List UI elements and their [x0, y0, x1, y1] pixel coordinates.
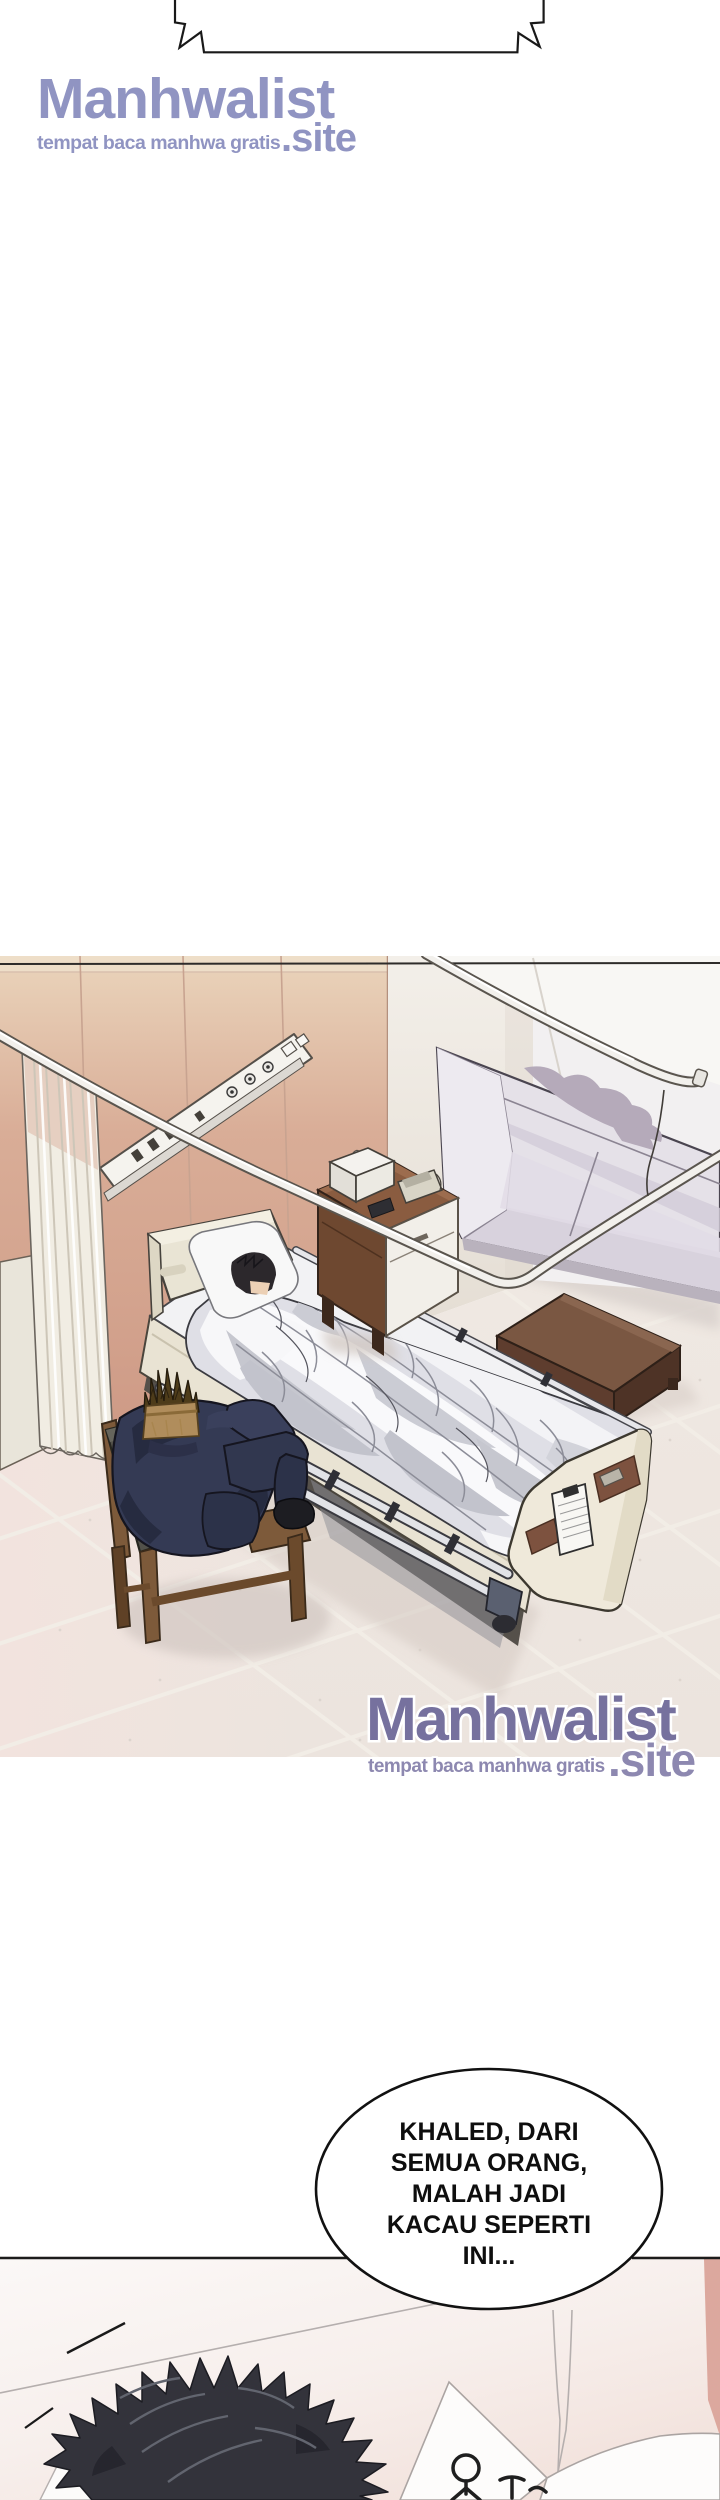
- svg-text:INI...: INI...: [463, 2242, 516, 2270]
- svg-text:KACAU SEPERTI: KACAU SEPERTI: [387, 2211, 591, 2239]
- svg-text:tempat baca manhwa gratis: tempat baca manhwa gratis: [368, 1756, 605, 1777]
- svg-text:.site: .site: [281, 116, 356, 160]
- svg-text:SEMUA ORANG,: SEMUA ORANG,: [391, 2149, 587, 2177]
- svg-text:.site: .site: [608, 1734, 695, 1786]
- svg-text:KHALED, DARI: KHALED, DARI: [399, 2118, 578, 2146]
- svg-text:tempat baca manhwa gratis: tempat baca manhwa gratis: [37, 132, 281, 154]
- svg-text:MALAH JADI: MALAH JADI: [412, 2180, 566, 2208]
